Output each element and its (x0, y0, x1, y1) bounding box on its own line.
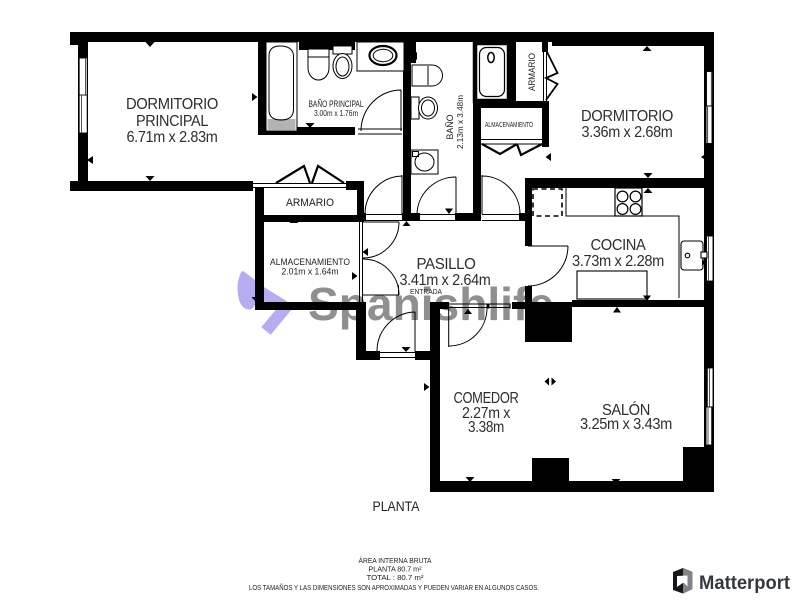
svg-text:DORMITORIO: DORMITORIO (126, 96, 218, 113)
svg-text:3.25m x 3.43m: 3.25m x 3.43m (580, 416, 672, 433)
svg-text:COCINA: COCINA (591, 237, 647, 254)
svg-text:2.01m x 1.64m: 2.01m x 1.64m (282, 267, 339, 277)
svg-text:TOTAL : 80.7 m²: TOTAL : 80.7 m² (367, 575, 425, 582)
svg-text:LOS TAMAÑOS Y LAS DIMENSIONES: LOS TAMAÑOS Y LAS DIMENSIONES SON APROXI… (249, 583, 539, 592)
svg-text:PLANTA: PLANTA (373, 498, 421, 514)
svg-text:2.13m x 3.48m: 2.13m x 3.48m (456, 95, 465, 149)
svg-text:ARMARIO: ARMARIO (527, 53, 537, 91)
svg-text:ALMACENAMIENTO: ALMACENAMIENTO (485, 120, 533, 129)
svg-text:PLANTA 80.7 m²: PLANTA 80.7 m² (369, 567, 423, 574)
svg-text:PASILLO: PASILLO (417, 256, 476, 273)
svg-text:3.38m: 3.38m (468, 419, 504, 436)
svg-text:PRINCIPAL: PRINCIPAL (136, 113, 208, 130)
svg-text:6.71m x 2.83m: 6.71m x 2.83m (127, 129, 218, 146)
svg-text:DORMITORIO: DORMITORIO (581, 108, 673, 125)
svg-text:3.36m x 2.68m: 3.36m x 2.68m (582, 124, 673, 141)
svg-text:3.73m x 2.28m: 3.73m x 2.28m (572, 253, 664, 270)
svg-text:ARMARIO: ARMARIO (286, 197, 334, 209)
svg-text:BAÑO: BAÑO (445, 115, 456, 140)
svg-text:3.41m x 2.64m: 3.41m x 2.64m (400, 272, 491, 289)
svg-text:Matterport: Matterport (699, 573, 791, 594)
svg-text:ALMACENAMIENTO: ALMACENAMIENTO (270, 257, 350, 267)
svg-text:ENTRADA: ENTRADA (410, 289, 442, 296)
svg-text:3.00m x 1.76m: 3.00m x 1.76m (314, 108, 358, 118)
svg-text:ÁREA INTERNA BRUTA: ÁREA INTERNA BRUTA (359, 556, 432, 565)
